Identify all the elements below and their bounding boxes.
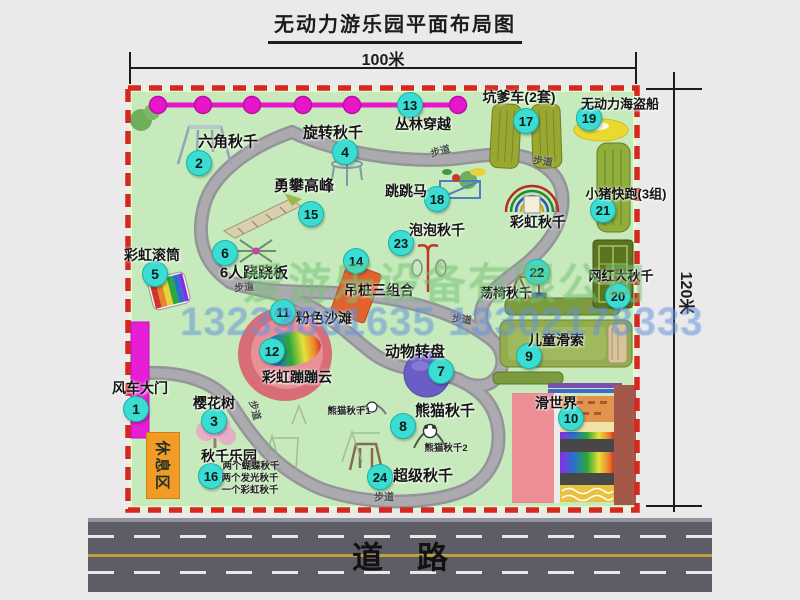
- marker-13[interactable]: 13: [397, 92, 423, 118]
- marker-20[interactable]: 20: [605, 283, 631, 309]
- screenshot-root: 无动力游乐园平面布局图 100米 120米: [0, 0, 800, 600]
- marker-19[interactable]: 19: [576, 105, 602, 131]
- marker-4[interactable]: 4: [332, 139, 358, 165]
- rest-area-label: 休息区: [153, 440, 174, 491]
- marker-10[interactable]: 10: [558, 405, 584, 431]
- marker-6[interactable]: 6: [212, 240, 238, 266]
- road: 道路: [88, 518, 712, 592]
- marker-3[interactable]: 3: [201, 408, 227, 434]
- marker-18[interactable]: 18: [424, 186, 450, 212]
- marker-2[interactable]: 2: [186, 150, 212, 176]
- marker-1[interactable]: 1: [123, 396, 149, 422]
- road-edge: [88, 518, 712, 522]
- climb-peak-icon: [224, 193, 302, 238]
- swing-park-sketch-icon: [262, 406, 380, 472]
- marker-9[interactable]: 9: [516, 343, 542, 369]
- map-graphics: [0, 0, 800, 600]
- rainbow-swing-icon: [506, 186, 558, 213]
- marker-22[interactable]: 22: [524, 259, 550, 285]
- rest-area-box: 休息区: [146, 432, 180, 499]
- marker-5[interactable]: 5: [142, 261, 168, 287]
- slide-world-icon: [512, 383, 636, 505]
- marker-14[interactable]: 14: [343, 248, 369, 274]
- road-label: 道路: [318, 533, 482, 578]
- zipline-icon: [493, 298, 632, 384]
- marker-11[interactable]: 11: [270, 299, 296, 325]
- marker-15[interactable]: 15: [298, 201, 324, 227]
- marker-24[interactable]: 24: [367, 464, 393, 490]
- marker-16[interactable]: 16: [198, 463, 224, 489]
- marker-8[interactable]: 8: [390, 413, 416, 439]
- marker-7[interactable]: 7: [428, 358, 454, 384]
- bubble-swing-icon: [412, 245, 446, 292]
- marker-21[interactable]: 21: [590, 197, 616, 223]
- marker-23[interactable]: 23: [388, 230, 414, 256]
- marker-12[interactable]: 12: [259, 338, 285, 364]
- marker-17[interactable]: 17: [513, 108, 539, 134]
- seesaw-icon: [236, 240, 276, 262]
